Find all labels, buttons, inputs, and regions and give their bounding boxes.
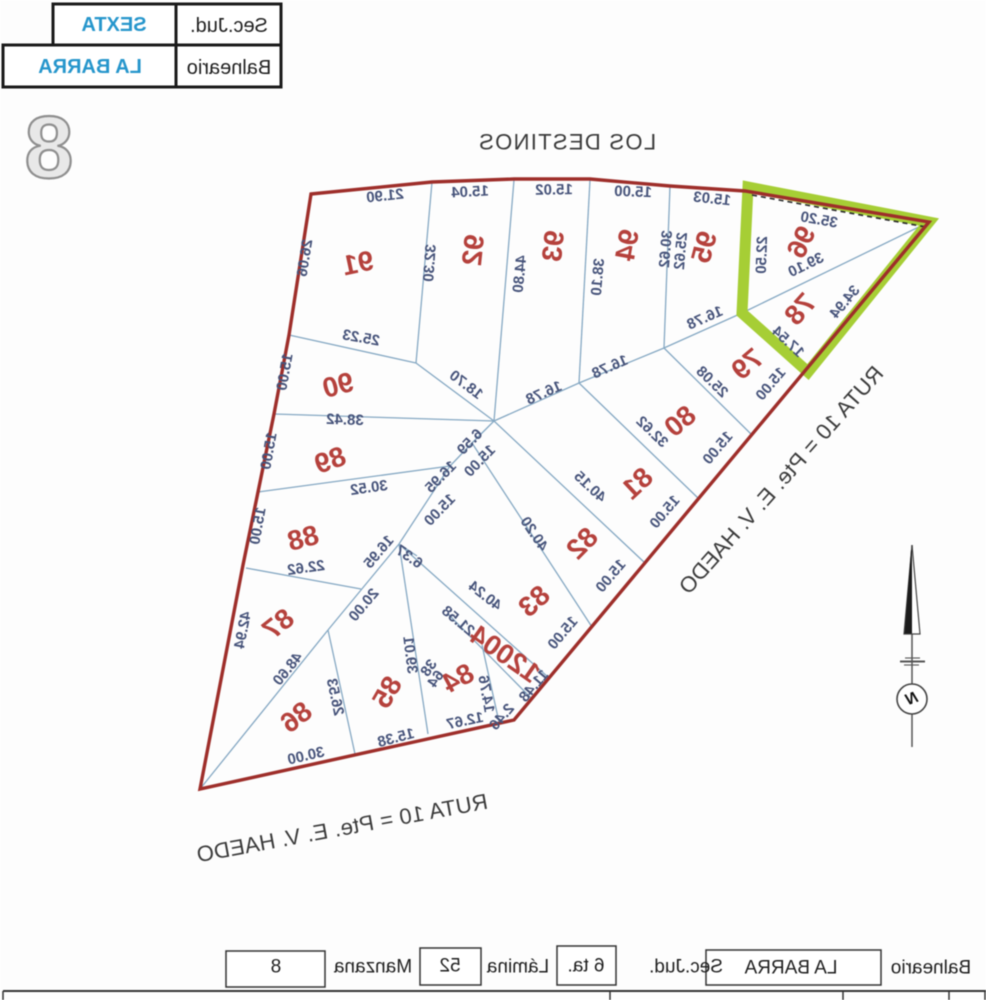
svg-text:92: 92 bbox=[456, 233, 490, 267]
svg-text:LA BARRA: LA BARRA bbox=[744, 958, 837, 979]
svg-text:15.00: 15.00 bbox=[614, 183, 652, 201]
svg-text:91: 91 bbox=[340, 245, 377, 282]
svg-text:SEXTA: SEXTA bbox=[81, 14, 146, 36]
svg-text:8: 8 bbox=[271, 957, 282, 978]
svg-text:Manzana: Manzana bbox=[333, 957, 412, 978]
svg-text:32.30: 32.30 bbox=[420, 244, 440, 283]
svg-text:6 ta.: 6 ta. bbox=[568, 956, 605, 977]
svg-text:Lámina: Lámina bbox=[486, 957, 549, 978]
svg-text:15.04: 15.04 bbox=[450, 183, 489, 202]
svg-text:52: 52 bbox=[439, 956, 460, 977]
svg-text:Balneario: Balneario bbox=[891, 958, 971, 979]
svg-text:93: 93 bbox=[536, 229, 570, 263]
svg-text:Balneario: Balneario bbox=[187, 57, 272, 79]
svg-text:25.62: 25.62 bbox=[671, 232, 691, 271]
svg-text:Sec.Jud.: Sec.Jud. bbox=[649, 957, 723, 978]
svg-text:Sec.Jud.: Sec.Jud. bbox=[190, 15, 268, 37]
svg-text:LOS DESTINOS: LOS DESTINOS bbox=[478, 130, 656, 155]
svg-text:38.10: 38.10 bbox=[588, 258, 608, 297]
svg-text:15.02: 15.02 bbox=[535, 181, 573, 199]
svg-text:94: 94 bbox=[609, 227, 645, 263]
svg-text:LA BARRA: LA BARRA bbox=[38, 56, 142, 78]
svg-text:22.50: 22.50 bbox=[753, 236, 771, 274]
svg-text:8: 8 bbox=[25, 98, 74, 197]
svg-text:38.42: 38.42 bbox=[326, 411, 364, 429]
